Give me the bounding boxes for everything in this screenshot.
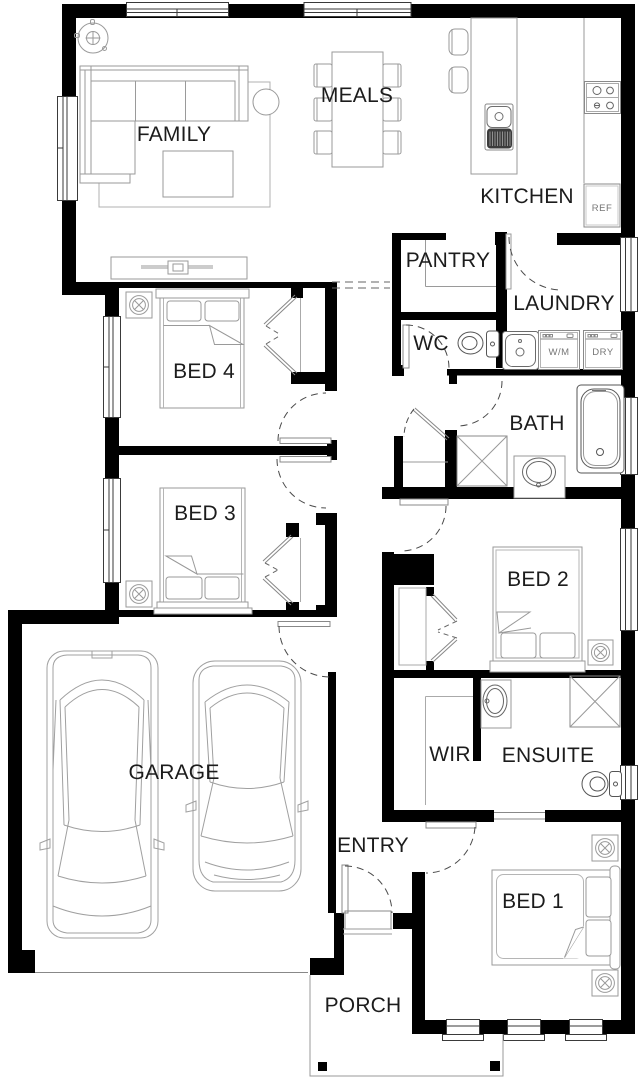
svg-text:WIR: WIR (429, 743, 470, 766)
svg-text:KITCHEN: KITCHEN (480, 185, 574, 208)
svg-text:BED 3: BED 3 (174, 502, 236, 525)
svg-text:FAMILY: FAMILY (137, 123, 211, 146)
svg-text:W/M: W/M (548, 347, 569, 358)
svg-text:PANTRY: PANTRY (406, 249, 490, 272)
svg-text:BATH: BATH (509, 412, 564, 435)
svg-text:BED 1: BED 1 (502, 890, 564, 913)
svg-text:BED 4: BED 4 (173, 360, 235, 383)
svg-text:WC: WC (413, 332, 448, 355)
svg-text:ENSUITE: ENSUITE (502, 744, 594, 767)
svg-text:PORCH: PORCH (325, 994, 402, 1017)
svg-text:BED 2: BED 2 (507, 568, 569, 591)
svg-text:DRY: DRY (592, 347, 614, 358)
svg-text:MEALS: MEALS (321, 84, 393, 107)
svg-text:ENTRY: ENTRY (337, 834, 409, 857)
svg-text:LAUNDRY: LAUNDRY (513, 292, 614, 315)
svg-text:REF: REF (592, 203, 613, 214)
svg-text:GARAGE: GARAGE (128, 761, 219, 784)
